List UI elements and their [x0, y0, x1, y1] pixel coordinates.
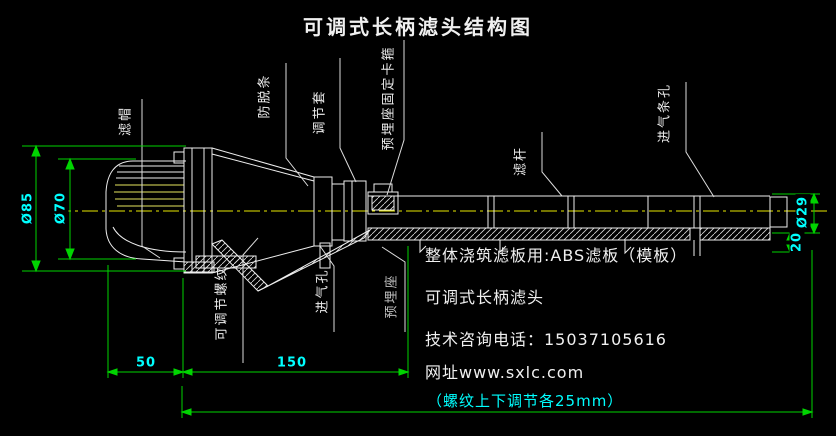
cad-drawing-page: 可调式长柄滤头结构图 滤帽 防脱条 调节套 预埋座固定卡箍 滤杆 进气条孔 可调… [0, 0, 836, 436]
drawing-svg [0, 0, 836, 436]
filter-rod [368, 196, 787, 228]
drawing-title: 可调式长柄滤头结构图 [0, 11, 836, 40]
seat-clamp [368, 184, 398, 214]
note-product-name: 可调式长柄滤头 [425, 284, 544, 308]
note-abs-plate: 整体浇筑滤板用:ABS滤板（模板） [425, 242, 687, 266]
note-website: 网址www.sxlc.com [425, 359, 584, 383]
note-phone: 技术咨询电话：15037105616 [425, 326, 667, 350]
note-thread-adjust: （螺纹上下调节各25mm） [427, 390, 623, 411]
